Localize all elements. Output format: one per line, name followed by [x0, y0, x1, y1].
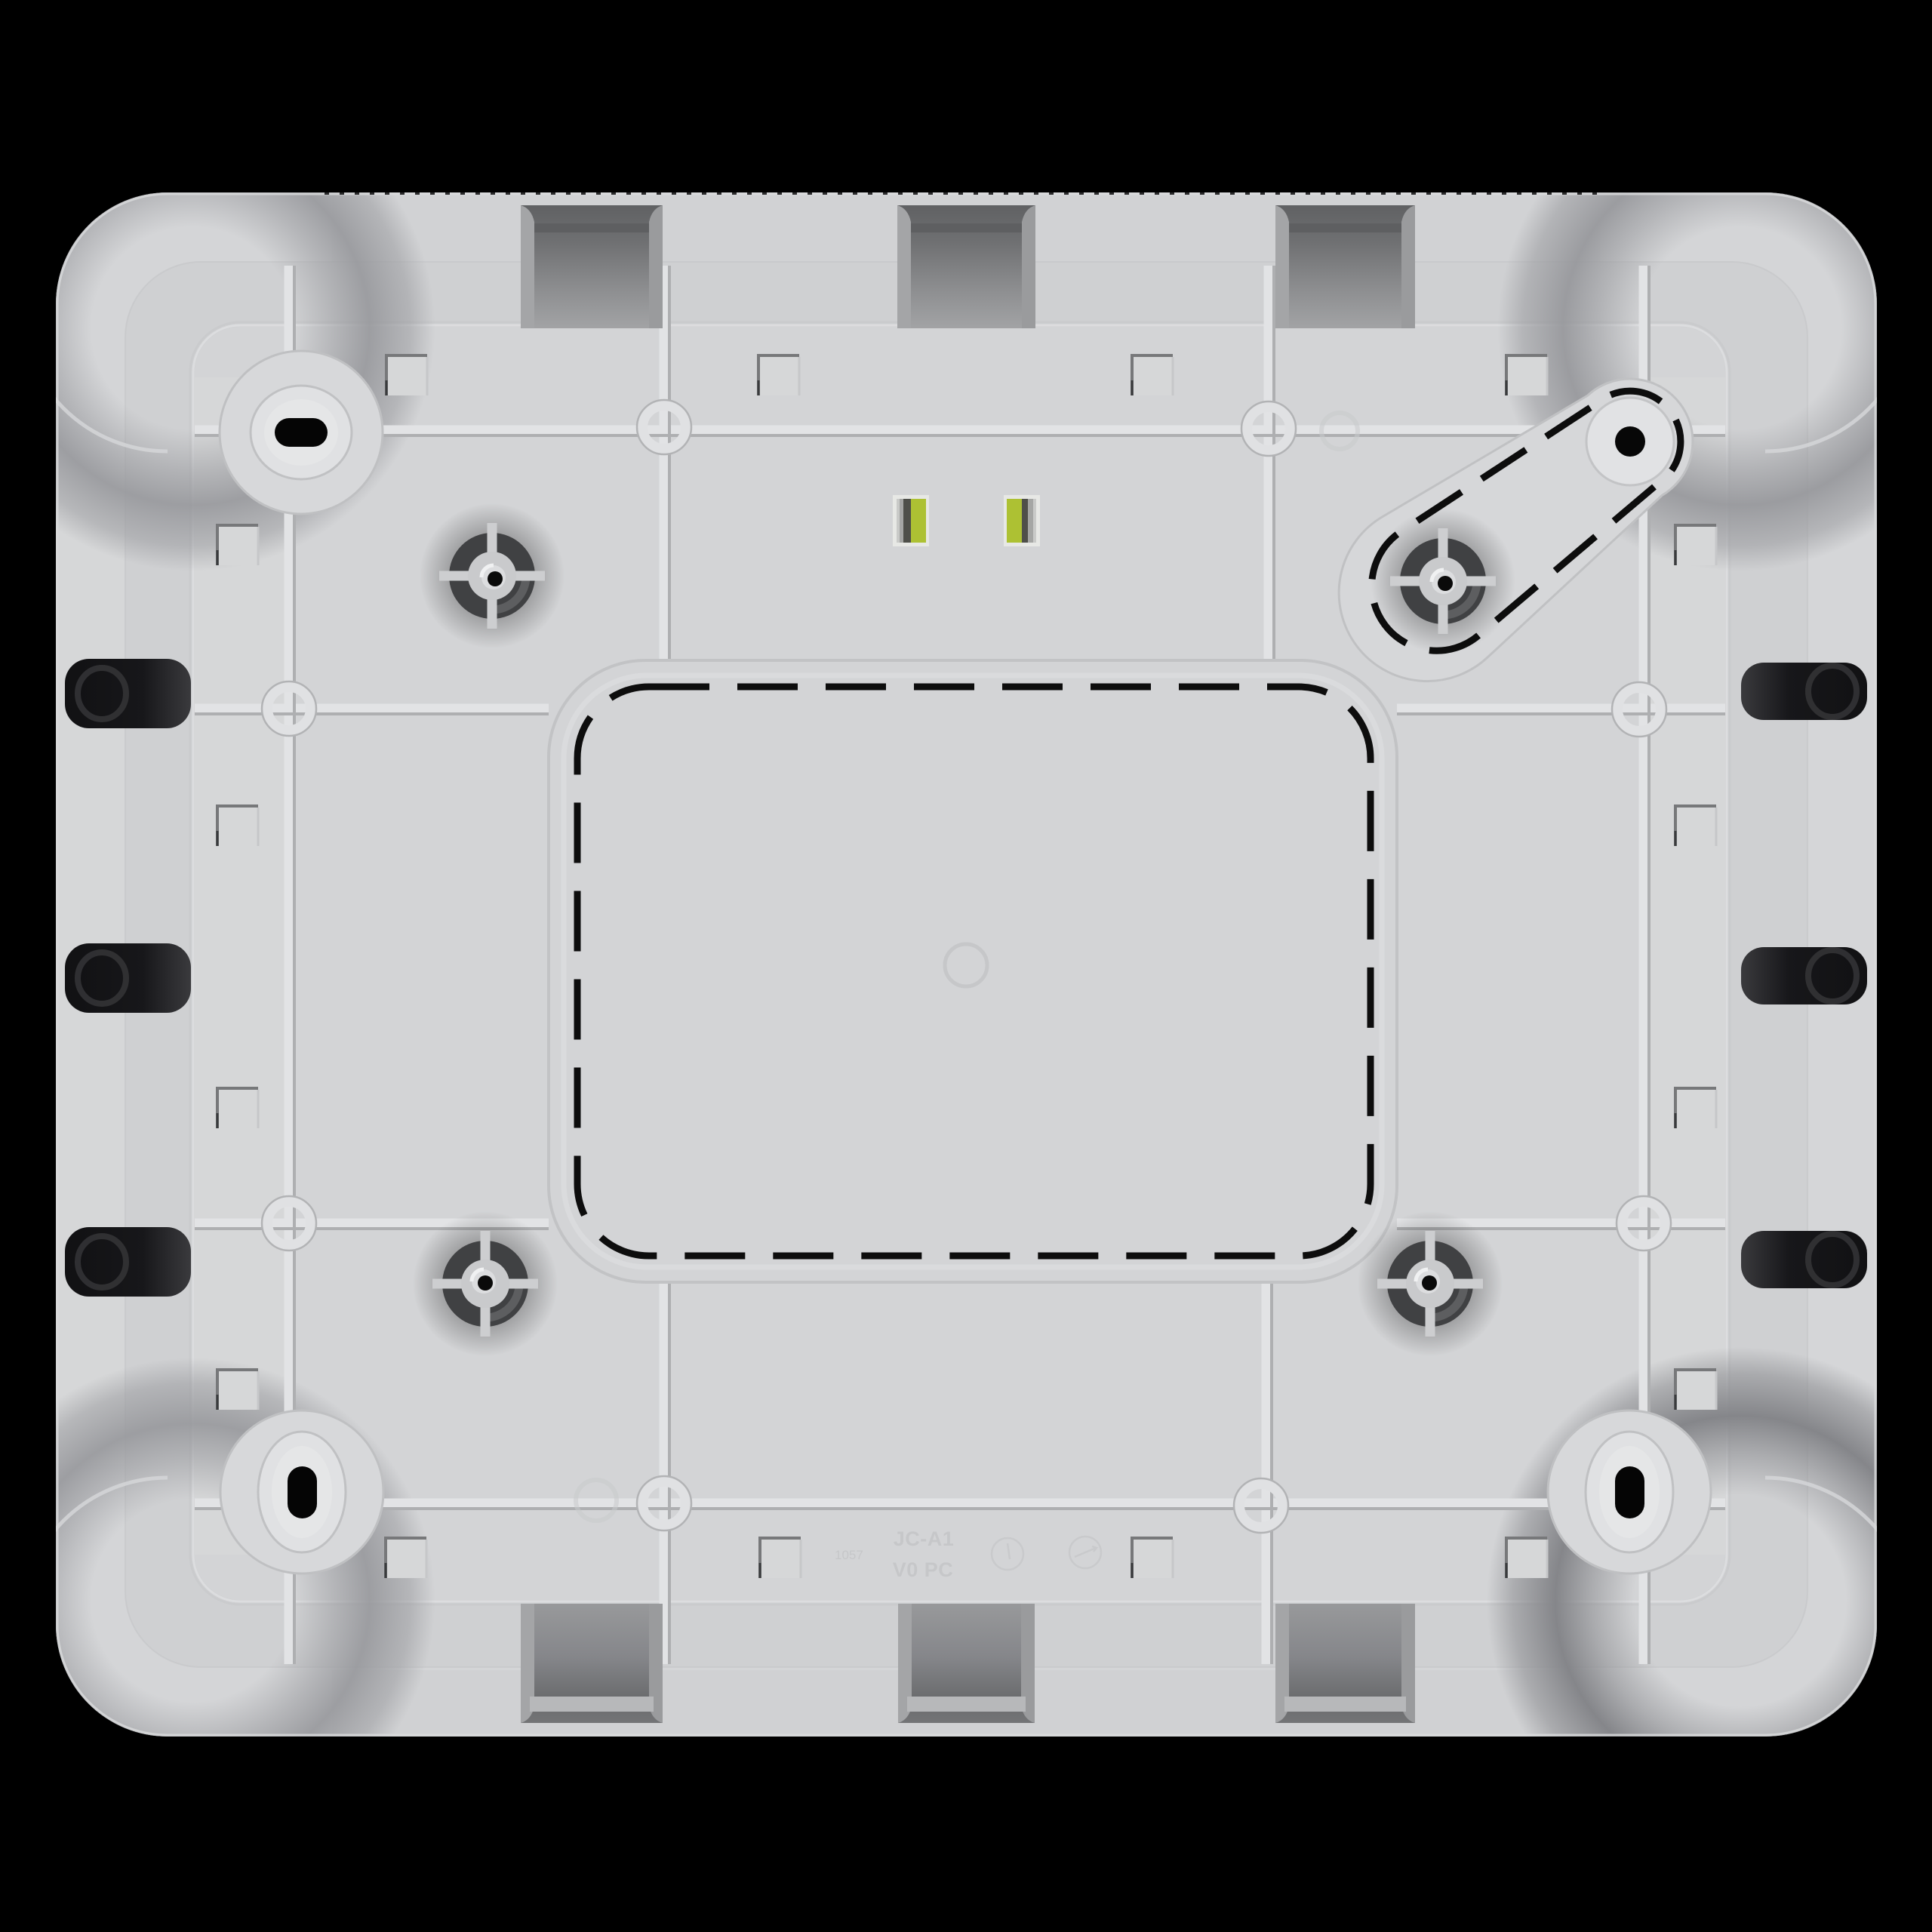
svg-text:V0 PC: V0 PC [893, 1558, 954, 1581]
svg-text:1057: 1057 [835, 1548, 863, 1562]
svg-text:JC-A1: JC-A1 [894, 1527, 955, 1550]
